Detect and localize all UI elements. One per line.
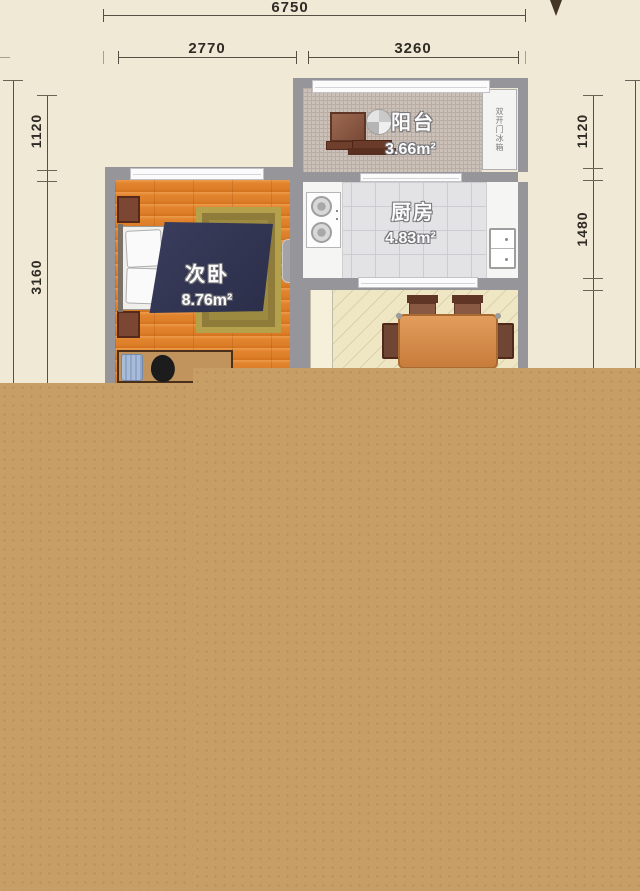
- window: [358, 277, 478, 288]
- dimension-label-top-left: 2770: [118, 41, 296, 56]
- tick: [103, 51, 104, 64]
- table-knob: [396, 313, 402, 319]
- dimension-line-right-inner: [593, 95, 594, 369]
- floor-plan-canvas: 6750 2770 3260 1120 3160 1120 1480 双开门冰箱…: [0, 0, 640, 891]
- table-knob: [495, 313, 501, 319]
- sink-divider: [491, 248, 514, 249]
- tick: [37, 181, 57, 182]
- wall-segment: [293, 88, 303, 172]
- wall-segment: [290, 180, 303, 278]
- dining-chair-icon: [452, 295, 483, 303]
- faucet-dot: [505, 258, 508, 261]
- dimension-line-right-outer: [635, 80, 636, 369]
- tick: [625, 80, 640, 81]
- tick: [103, 9, 104, 22]
- dimension-line-left-outer: [13, 80, 14, 383]
- dimension-label-right-middle: 1480: [574, 189, 590, 269]
- stove-knob: [336, 218, 338, 220]
- fridge-label: 双开门冰箱: [494, 107, 505, 152]
- bedroom-area-label: 8.76m²: [137, 290, 277, 312]
- stove-burner-1: [311, 196, 332, 217]
- dining-chair-icon: [496, 323, 514, 359]
- desk-chair-icon: [121, 354, 143, 381]
- tick: [0, 57, 10, 58]
- nightstand-icon: [117, 196, 140, 223]
- dimension-line-top-right: [308, 57, 518, 58]
- dimension-label-left-lower: 3160: [28, 237, 44, 317]
- nightstand-icon: [117, 311, 140, 338]
- tick: [525, 9, 526, 22]
- dimension-line-top-left: [118, 57, 296, 58]
- dimension-line-left-inner: [47, 95, 48, 383]
- north-arrow-icon: [550, 0, 562, 16]
- tick: [3, 80, 23, 81]
- fridge-icon: 双开门冰箱: [482, 89, 517, 170]
- dining-door-panel: [310, 288, 333, 369]
- dining-table-icon: [398, 314, 498, 369]
- tick: [296, 51, 297, 64]
- tick: [583, 278, 603, 279]
- stove-knob: [336, 210, 338, 212]
- window: [360, 173, 462, 182]
- dimension-label-top-total: 6750: [250, 0, 330, 15]
- tick: [583, 290, 603, 291]
- tick: [518, 51, 519, 64]
- tick: [583, 180, 603, 181]
- dimension-label-top-right: 3260: [308, 41, 518, 56]
- wall-segment: [518, 88, 528, 172]
- bed-headboard: [118, 224, 123, 312]
- wall-segment: [518, 290, 528, 369]
- dimension-line-top-total: [103, 15, 525, 16]
- dimension-label-right-upper: 1120: [574, 91, 590, 171]
- balcony-name-label: 阳台: [343, 110, 483, 136]
- covered-region: [193, 368, 640, 891]
- faucet-dot: [505, 238, 508, 241]
- dining-chair-icon: [407, 295, 438, 303]
- balcony-area-label: 3.66m²: [343, 139, 478, 161]
- wall-segment: [105, 180, 115, 383]
- wall-segment: [518, 182, 528, 278]
- wall-segment: [290, 278, 310, 369]
- stove-burner-2: [311, 222, 332, 243]
- bedroom-name-label: 次卧: [137, 262, 277, 288]
- covered-region: [0, 383, 193, 891]
- window: [312, 80, 490, 93]
- tick: [525, 51, 526, 64]
- kitchen-name-label: 厨房: [343, 200, 483, 226]
- dimension-label-left-upper: 1120: [28, 91, 44, 171]
- window: [130, 168, 264, 180]
- kitchen-area-label: 4.83m²: [343, 228, 478, 250]
